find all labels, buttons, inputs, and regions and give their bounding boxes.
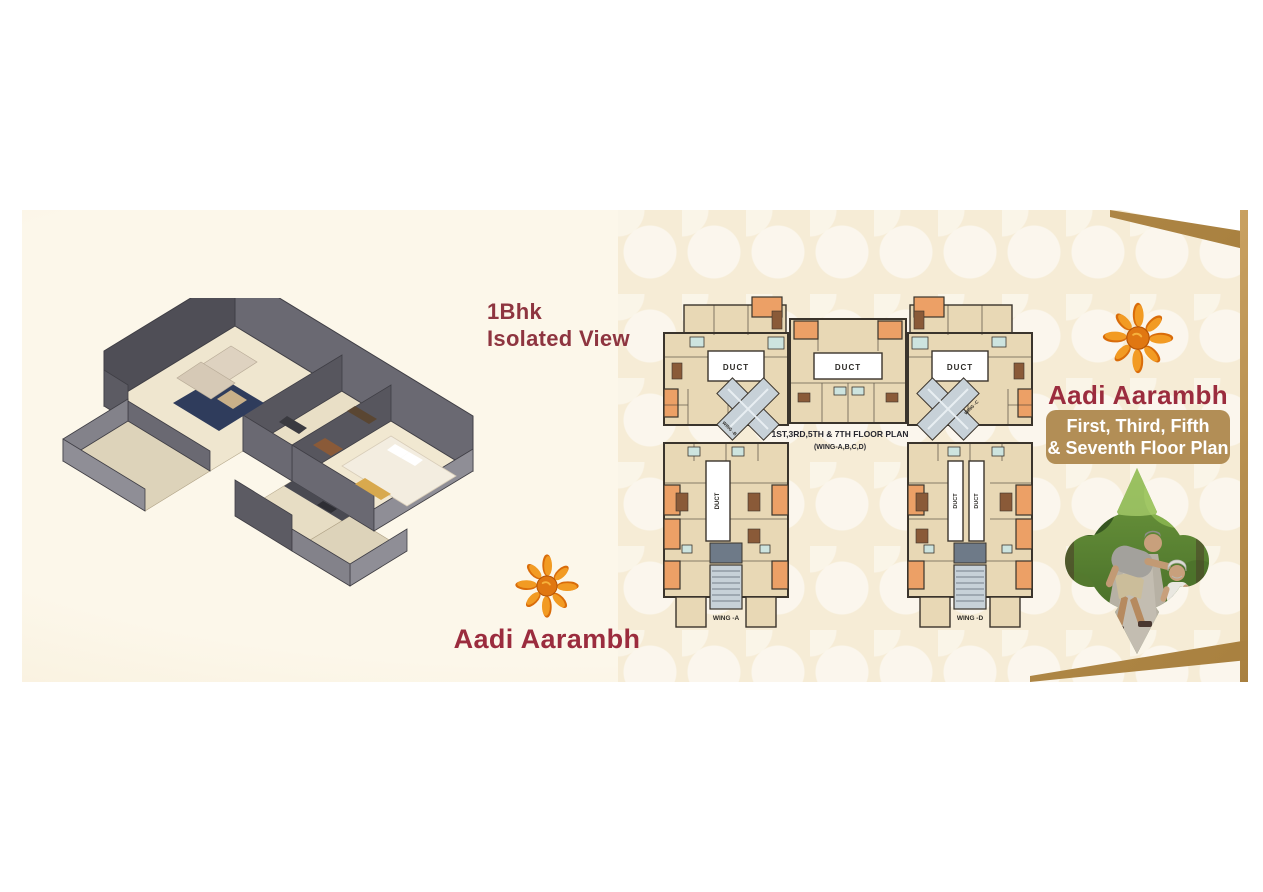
brand-logo-left: Aadi Aarambh	[452, 550, 642, 655]
banner-line-1: First, Third, Fifth	[1067, 415, 1210, 437]
family-cycling-photo	[1056, 466, 1218, 656]
duct-label-wing-d-1: DUCT	[953, 493, 959, 509]
duct-label-wing-a: DUCT	[715, 492, 721, 509]
heading-line-2: Isolated View	[487, 325, 630, 352]
plan-wing-a	[664, 443, 788, 627]
sun-logo-icon	[511, 550, 583, 622]
duct-label-top-right: DUCT	[947, 363, 973, 372]
plan-title-line1: 1ST,3RD,5TH & 7TH FLOOR PLAN	[772, 429, 909, 439]
floor-plan-illustration: DUCT DUCT DUCT	[648, 293, 1048, 645]
brand-name: Aadi Aarambh	[1040, 380, 1236, 411]
banner-line-2: & Seventh Floor Plan	[1047, 437, 1228, 459]
duct-label-wing-d-2: DUCT	[974, 493, 980, 509]
duct-label-top-center: DUCT	[835, 363, 861, 372]
wing-d-label: WING -D	[957, 615, 984, 622]
isolated-view-heading: 1Bhk Isolated View	[487, 298, 630, 352]
wing-a-label: WING -A	[713, 615, 740, 622]
plan-top-left-cluster	[664, 297, 788, 425]
brand-name: Aadi Aarambh	[452, 624, 642, 655]
floor-plan-banner: First, Third, Fifth & Seventh Floor Plan	[1046, 410, 1230, 464]
sun-logo-icon	[1098, 298, 1178, 378]
plan-wing-d	[908, 443, 1032, 627]
plan-title-line2: (WING-A,B,C,D)	[814, 444, 866, 451]
heading-line-1: 1Bhk	[487, 298, 630, 325]
duct-label-top-left: DUCT	[723, 363, 749, 372]
isometric-apartment-illustration	[25, 298, 485, 633]
brand-logo-right: Aadi Aarambh	[1040, 298, 1236, 411]
brochure-page: 1Bhk Isolated View Aadi Aarambh	[0, 0, 1263, 892]
